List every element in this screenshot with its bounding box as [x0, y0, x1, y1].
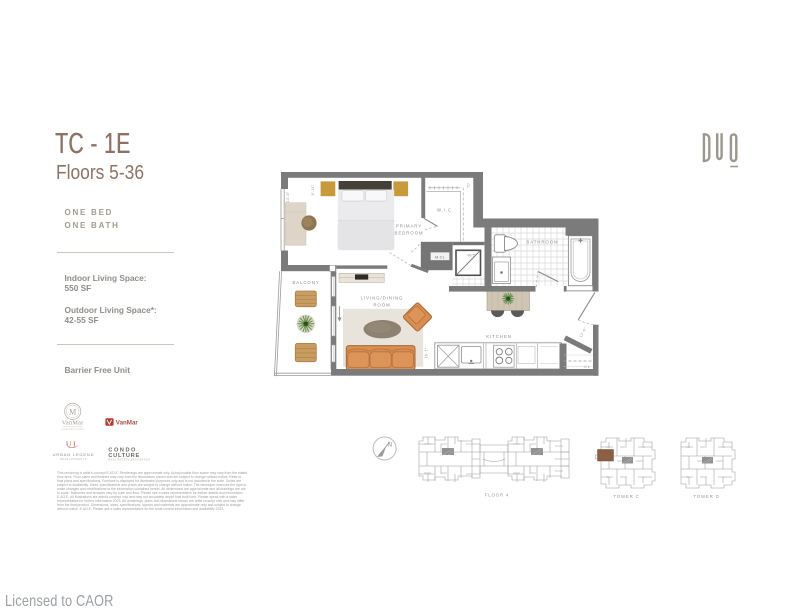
- svg-text:CONSTRUCTORS: CONSTRUCTORS: [61, 429, 84, 431]
- svg-text:BALCONY: BALCONY: [292, 280, 319, 285]
- svg-text:16'-1": 16'-1": [425, 347, 429, 358]
- svg-text:13'-6": 13'-6": [286, 191, 290, 202]
- svg-text:DEVELOPMENTS: DEVELOPMENTS: [60, 458, 87, 461]
- svg-text:REAL ESTATE BROKERAGE: REAL ESTATE BROKERAGE: [108, 458, 150, 461]
- svg-text:CL: CL: [584, 365, 590, 369]
- svg-text:U L: U L: [66, 440, 78, 449]
- svg-text:W/D: W/D: [467, 254, 475, 258]
- svg-text:FLOOR 4: FLOOR 4: [485, 493, 509, 498]
- svg-text:M: M: [69, 408, 76, 417]
- svg-text:CL: CL: [466, 183, 470, 188]
- svg-text:BATHROOM: BATHROOM: [526, 240, 558, 245]
- svg-text:8'-11": 8'-11": [311, 184, 315, 195]
- svg-text:PRIMARY: PRIMARY: [396, 224, 422, 229]
- svg-text:LIVING/DINING: LIVING/DINING: [361, 296, 404, 301]
- svg-text:M.CL: M.CL: [435, 255, 445, 259]
- svg-text:TOWER C: TOWER C: [613, 494, 639, 499]
- svg-text:VanMar: VanMar: [116, 420, 139, 427]
- svg-text:13'-6": 13'-6": [579, 326, 588, 338]
- svg-text:ROOM: ROOM: [373, 303, 390, 308]
- svg-text:KITCHEN: KITCHEN: [486, 334, 512, 339]
- svg-text:BEDROOM: BEDROOM: [395, 231, 424, 236]
- svg-text:URBAN LEGEND: URBAN LEGEND: [53, 452, 95, 457]
- svg-text:TOWER D: TOWER D: [693, 494, 719, 499]
- svg-text:W.I.C.: W.I.C.: [437, 208, 454, 213]
- svg-text:VanMar: VanMar: [62, 419, 84, 426]
- svg-text:N: N: [388, 442, 393, 449]
